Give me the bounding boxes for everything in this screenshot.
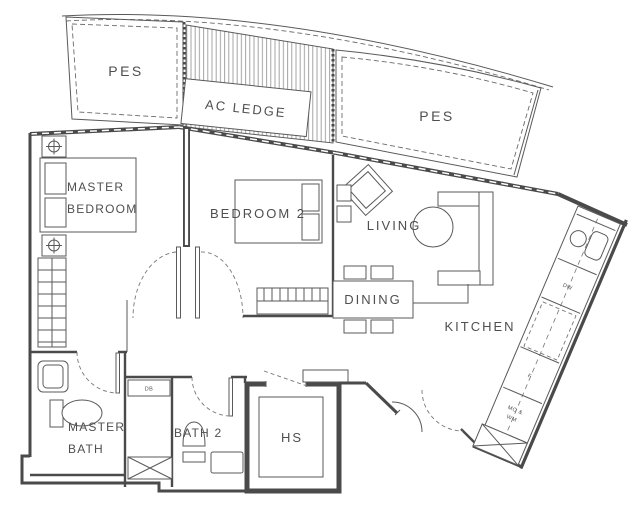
entry [339,383,478,446]
master-bedroom-label-1: MASTER [67,180,124,194]
sink [38,361,68,392]
mo-wm-label-2: WM [505,414,517,424]
shower-tray [211,452,243,473]
bedroom-2-label: BEDROOM 2 [210,206,306,221]
db-label: DB [145,387,153,393]
master-bath-door-swing [77,352,118,393]
entry-door-swing [422,390,463,431]
door-leaf [229,378,233,416]
dining-area: DINING [333,266,413,333]
master-bath-label-2: BATH [68,442,104,456]
wardrobe [38,258,66,347]
dining-label: DINING [344,292,402,307]
master-bath: MASTER BATH [38,352,125,456]
floor-plan-drawing: AC LEDGE [0,0,639,507]
kitchen-sink [566,223,610,262]
ac-ledge-area: AC LEDGE [181,25,333,143]
master-bedroom-door-swing [133,252,176,318]
chair [344,266,366,279]
chair [371,266,393,279]
hs-lintel [303,370,348,382]
hs-label: HS [281,430,303,445]
db-closet: DB [128,380,172,479]
pes-left-label: PES [108,63,144,79]
side-table [337,185,351,201]
door-leaf [116,353,120,393]
dresser [257,288,328,314]
store-crossed-box [128,457,172,479]
pillow [45,163,66,194]
bedroom2-door-swing [201,252,243,318]
door-leaf [196,247,200,318]
master-bedroom: MASTER BEDROOM [38,136,137,352]
bath-2: BATH 2 [174,377,243,473]
fridge-label: F [527,373,533,380]
chair [344,320,366,333]
household-shelter: HS [247,370,348,491]
floor-plan-page: AC LEDGE [0,0,639,507]
side-table [337,206,351,222]
entry-door-leaf-swing [392,402,422,432]
bedroom-2: BEDROOM 2 [210,155,333,316]
dishwasher-label: DW [562,283,574,293]
chair [371,320,393,333]
bath-2-door-swing [192,377,231,416]
master-bath-label-1: MASTER [68,420,125,434]
living-label: LIVING [367,218,422,233]
pillow [45,198,66,227]
pes-right-label: PES [419,108,455,124]
door-leaf [177,247,181,318]
bedroom-partition-wall [133,127,243,318]
bath-2-label: BATH 2 [174,426,222,440]
master-bedroom-label-2: BEDROOM [67,202,137,216]
floor-edge-line [413,284,468,303]
kitchen-label: KITCHEN [444,319,515,334]
